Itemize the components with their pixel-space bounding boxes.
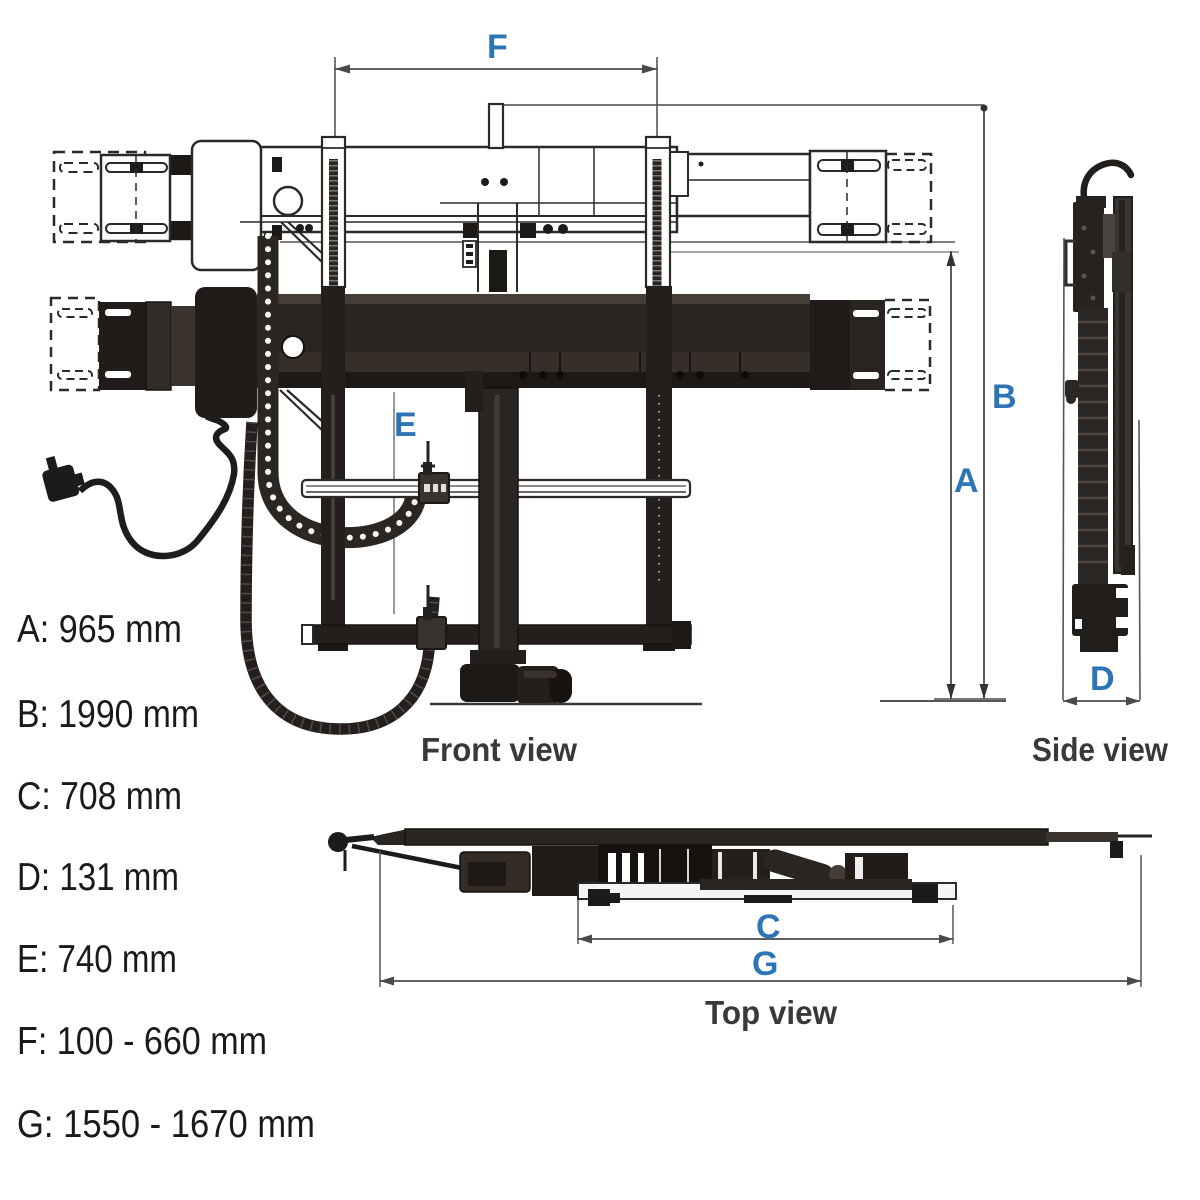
- svg-text:Top view: Top view: [705, 994, 837, 1031]
- svg-text:D: 131 mm: D: 131 mm: [17, 856, 179, 899]
- svg-text:A: A: [954, 462, 979, 500]
- svg-text:E: E: [394, 406, 417, 444]
- svg-text:Front view: Front view: [421, 731, 577, 768]
- svg-text:A: 965 mm: A: 965 mm: [17, 608, 182, 651]
- svg-text:C: 708 mm: C: 708 mm: [17, 775, 182, 818]
- svg-text:C: C: [756, 908, 781, 946]
- svg-text:B: 1990 mm: B: 1990 mm: [17, 693, 199, 736]
- svg-text:Side view: Side view: [1032, 731, 1168, 768]
- svg-text:F: F: [487, 28, 508, 66]
- svg-text:G: G: [752, 945, 778, 983]
- svg-text:D: D: [1090, 660, 1115, 698]
- svg-text:E: 740 mm: E: 740 mm: [17, 938, 177, 981]
- svg-text:G: 1550 - 1670 mm: G: 1550 - 1670 mm: [17, 1103, 315, 1146]
- svg-text:F: 100 - 660 mm: F: 100 - 660 mm: [17, 1020, 267, 1063]
- svg-text:B: B: [992, 378, 1017, 416]
